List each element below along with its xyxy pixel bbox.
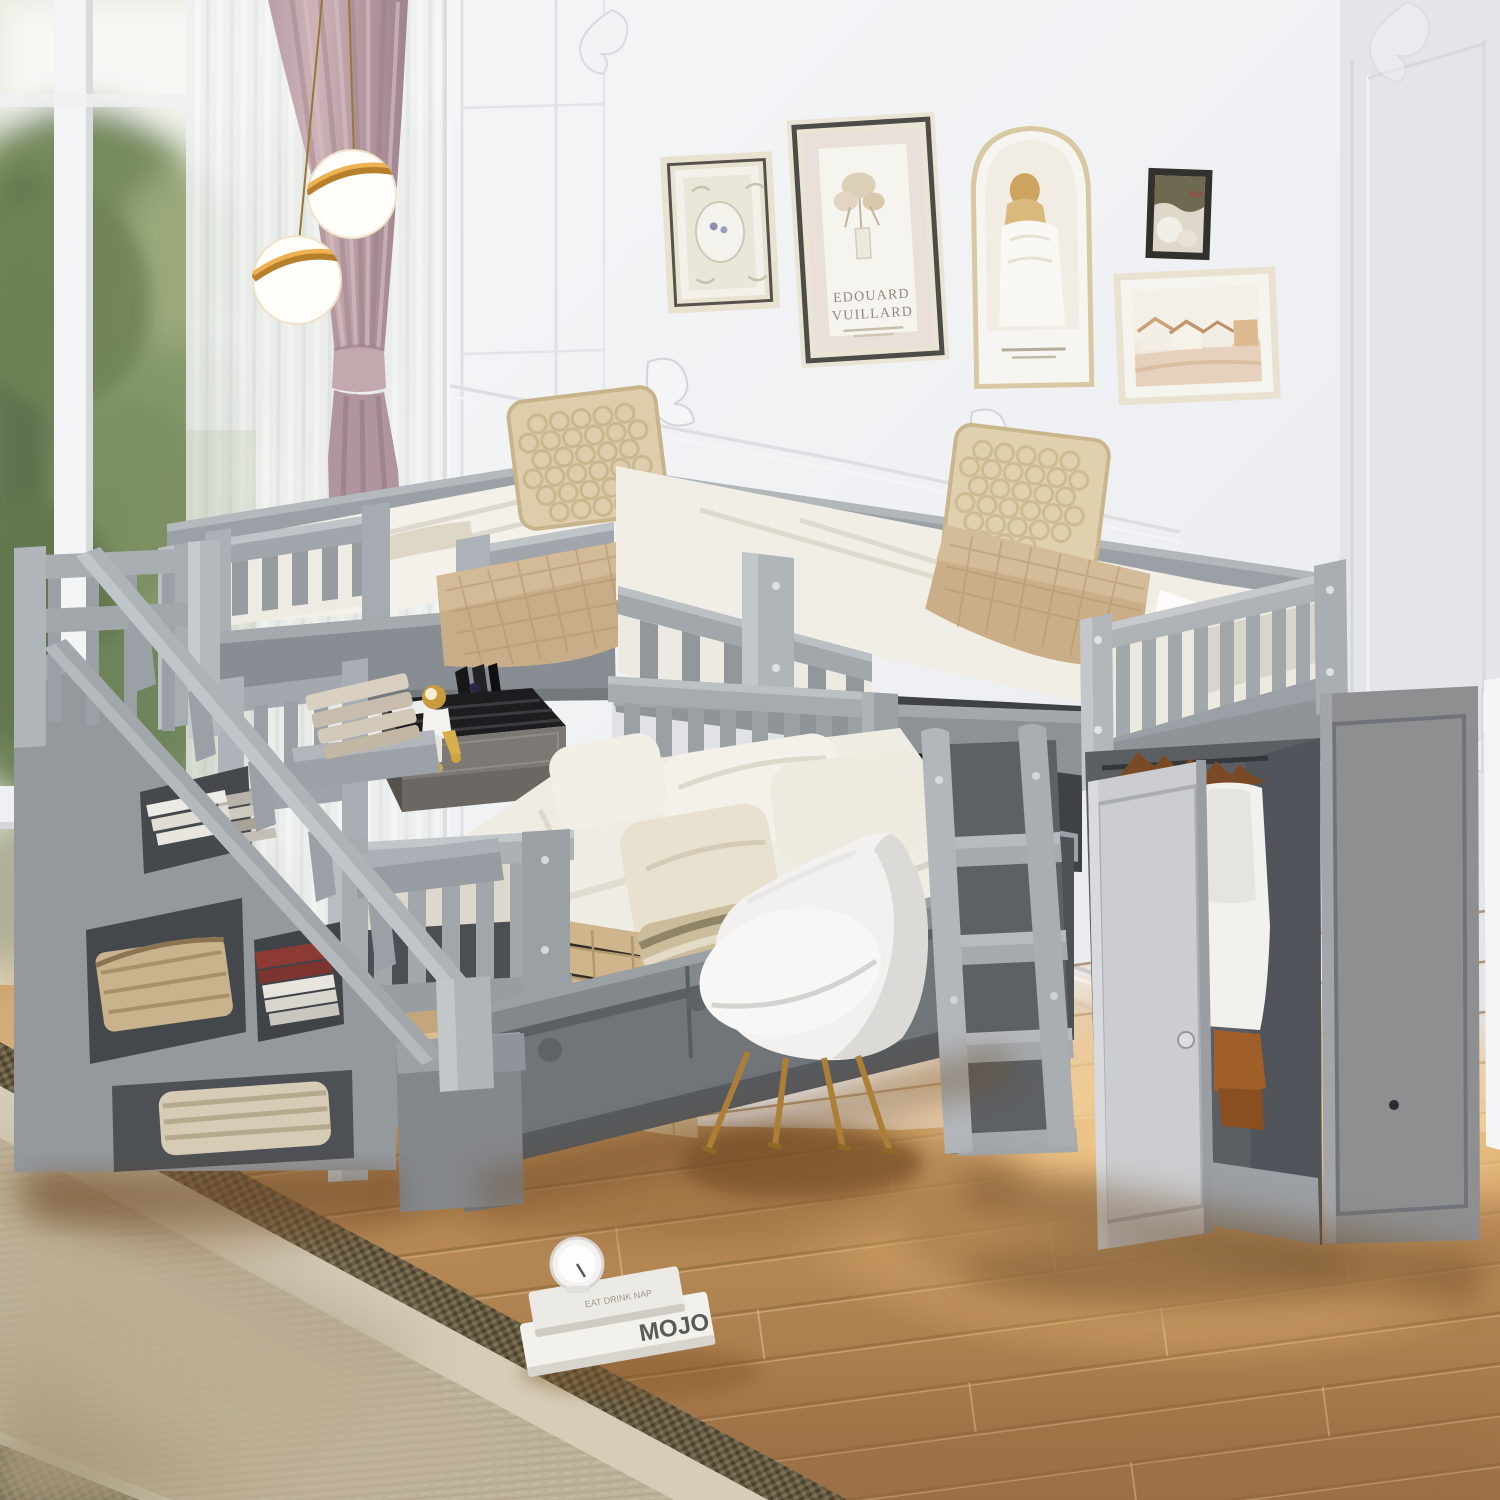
svg-text:Hav: Hav (1189, 188, 1205, 199)
